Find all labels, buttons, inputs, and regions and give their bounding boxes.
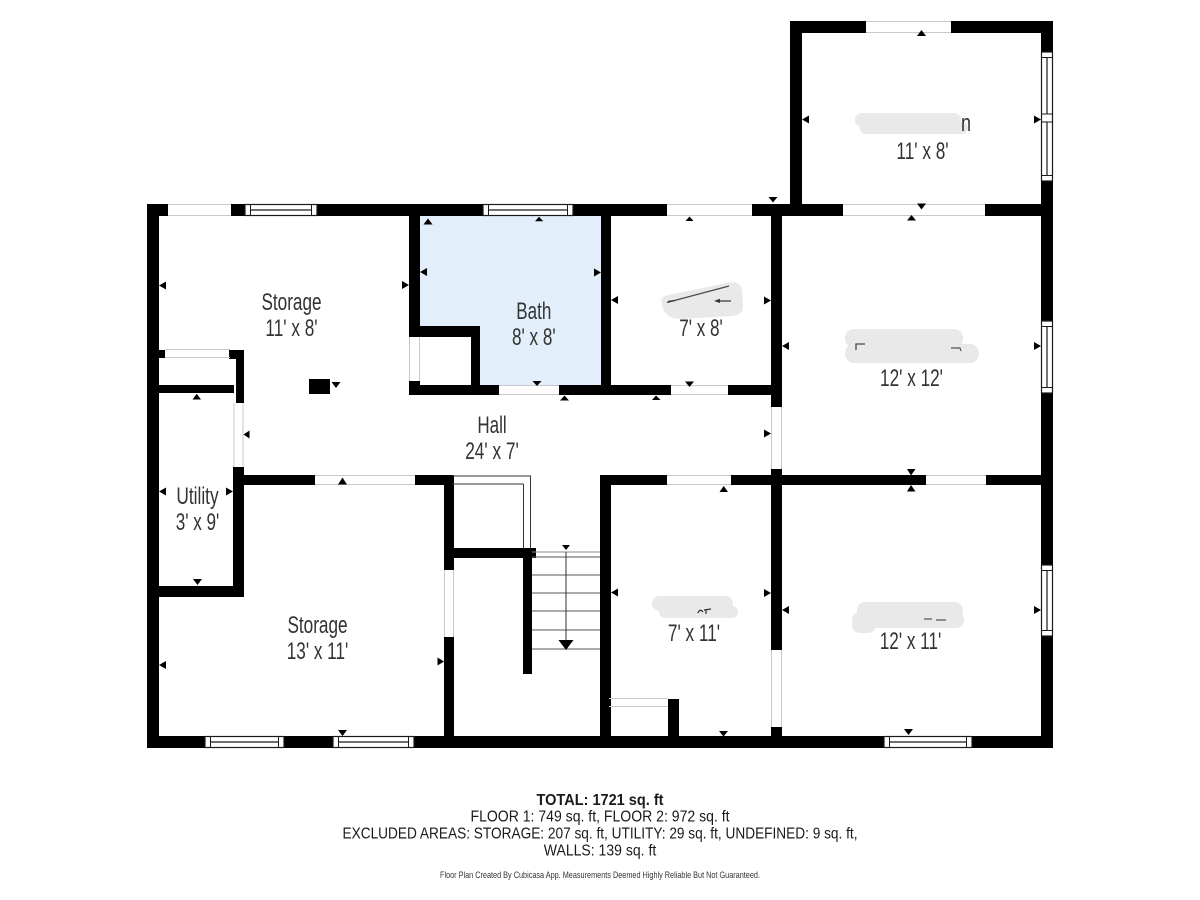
- svg-text:13' x 11': 13' x 11': [287, 638, 349, 665]
- svg-text:WALLS: 139 sq. ft: WALLS: 139 sq. ft: [544, 843, 657, 860]
- svg-text:Utility: Utility: [176, 483, 218, 510]
- svg-text:7' x 8': 7' x 8': [679, 315, 723, 342]
- svg-text:3' x 9': 3' x 9': [176, 509, 220, 536]
- svg-text:Floor Plan Created By Cubicasa: Floor Plan Created By Cubicasa App. Meas…: [440, 870, 760, 881]
- svg-text:FLOOR 1: 749 sq. ft, FLOOR 2:: FLOOR 1: 749 sq. ft, FLOOR 2: 972 sq. ft: [471, 809, 730, 826]
- svg-text:11' x 8': 11' x 8': [265, 315, 317, 342]
- svg-text:Storage: Storage: [287, 612, 347, 639]
- svg-text:11' x 8': 11' x 8': [896, 138, 948, 165]
- svg-text:Bath: Bath: [516, 298, 551, 325]
- svg-text:12' x 12': 12' x 12': [880, 365, 943, 392]
- svg-text:Hall: Hall: [477, 412, 506, 439]
- svg-text:12' x 11': 12' x 11': [880, 628, 942, 655]
- svg-text:TOTAL: 1721 sq. ft: TOTAL: 1721 sq. ft: [537, 792, 665, 809]
- svg-text:n: n: [961, 110, 971, 137]
- svg-text:8' x 8': 8' x 8': [512, 324, 556, 351]
- svg-text:7' x 11': 7' x 11': [668, 620, 720, 647]
- svg-text:24' x 7': 24' x 7': [465, 438, 519, 465]
- svg-text:EXCLUDED AREAS: STORAGE: 207 s: EXCLUDED AREAS: STORAGE: 207 sq. ft, UTI…: [343, 826, 858, 843]
- svg-text:Storage: Storage: [261, 289, 321, 316]
